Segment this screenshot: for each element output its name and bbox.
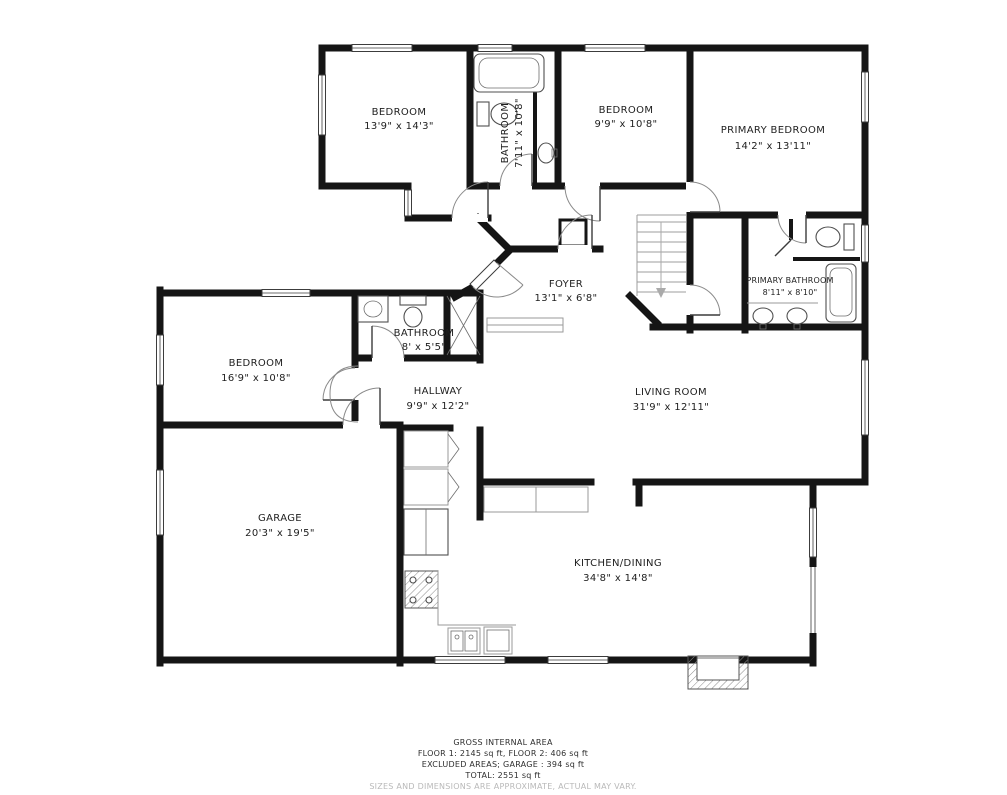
room-label-foyer: FOYER (549, 279, 583, 290)
room-label-bedroom-1: BEDROOM (372, 107, 427, 118)
room-dims-primary-bathroom: 8'11" x 8'10" (763, 288, 818, 297)
toilet-icon (400, 296, 426, 327)
footer-title: GROSS INTERNAL AREA (453, 738, 553, 747)
room-dims-bedroom-3: 16'9" x 10'8" (221, 373, 291, 384)
room-label-hallway: HALLWAY (414, 386, 463, 397)
toilet-icon (477, 102, 517, 126)
footer: GROSS INTERNAL AREA FLOOR 1: 2145 sq ft,… (369, 738, 636, 791)
room-label-primary-bedroom: PRIMARY BEDROOM (721, 125, 825, 136)
footer-disclaimer: SIZES AND DIMENSIONS ARE APPROXIMATE, AC… (369, 782, 636, 791)
footer-floor-areas: FLOOR 1: 2145 sq ft, FLOOR 2: 406 sq ft (418, 749, 588, 758)
toilet-icon (775, 224, 854, 256)
room-label-bathroom-upper: BATHROOM (500, 103, 511, 164)
floor-plan-svg: BEDROOM 13'9" x 14'3" BATHROOM 7'11" x 1… (0, 0, 1007, 795)
sink-icon (538, 143, 557, 163)
room-label-kitchen-dining: KITCHEN/DINING (574, 558, 662, 569)
room-dims-primary-bedroom: 14'2" x 13'11" (735, 141, 811, 152)
room-label-living-room: LIVING ROOM (635, 387, 707, 398)
room-dims-hallway: 9'9" x 12'2" (407, 401, 470, 412)
stove-icon (405, 571, 438, 608)
kitchen-island-counter (484, 487, 588, 512)
refrigerator-icon (404, 509, 448, 555)
footer-total-area: TOTAL: 2551 sq ft (464, 771, 540, 780)
bathtub-icon (474, 54, 544, 92)
entry-door (470, 260, 523, 297)
room-label-primary-bathroom: PRIMARY BATHROOM (746, 276, 833, 285)
room-dims-foyer: 13'1" x 6'8" (535, 293, 598, 304)
room-dims-bedroom-1: 13'9" x 14'3" (364, 121, 434, 132)
stairs-arrow-icon (656, 288, 666, 298)
footer-excluded-areas: EXCLUDED AREAS; GARAGE : 394 sq ft (422, 760, 584, 769)
kitchen-counter (438, 571, 516, 625)
kitchen-sink-icon (448, 628, 480, 654)
room-label-bedroom-3: BEDROOM (229, 358, 284, 369)
foyer-counter (487, 318, 563, 332)
room-dims-bathroom-mid: 8' x 5'5" (402, 342, 447, 353)
washer-dryer-icon (404, 431, 459, 505)
sliding-door (810, 567, 817, 633)
windows (157, 45, 869, 664)
floor-plan-page: BEDROOM 13'9" x 14'3" BATHROOM 7'11" x 1… (0, 0, 1007, 795)
room-dims-living-room: 31'9" x 12'11" (633, 402, 709, 413)
stairs (637, 215, 686, 298)
dishwasher-icon (484, 627, 512, 654)
sink-icon (358, 296, 388, 322)
hall-closet (560, 220, 586, 246)
room-label-bathroom-mid: BATHROOM (394, 328, 455, 339)
room-dims-bathroom-upper: 7'11" x 10'8" (514, 98, 525, 168)
room-dims-garage: 20'3" x 19'5" (245, 528, 315, 539)
closet-x-marks (447, 296, 480, 355)
room-label-bedroom-2: BEDROOM (599, 105, 654, 116)
room-label-garage: GARAGE (258, 513, 302, 524)
porch (688, 656, 748, 689)
room-dims-kitchen-dining: 34'8" x 14'8" (583, 573, 653, 584)
bathtub-icon (826, 264, 856, 322)
room-dims-bedroom-2: 9'9" x 10'8" (595, 119, 658, 130)
